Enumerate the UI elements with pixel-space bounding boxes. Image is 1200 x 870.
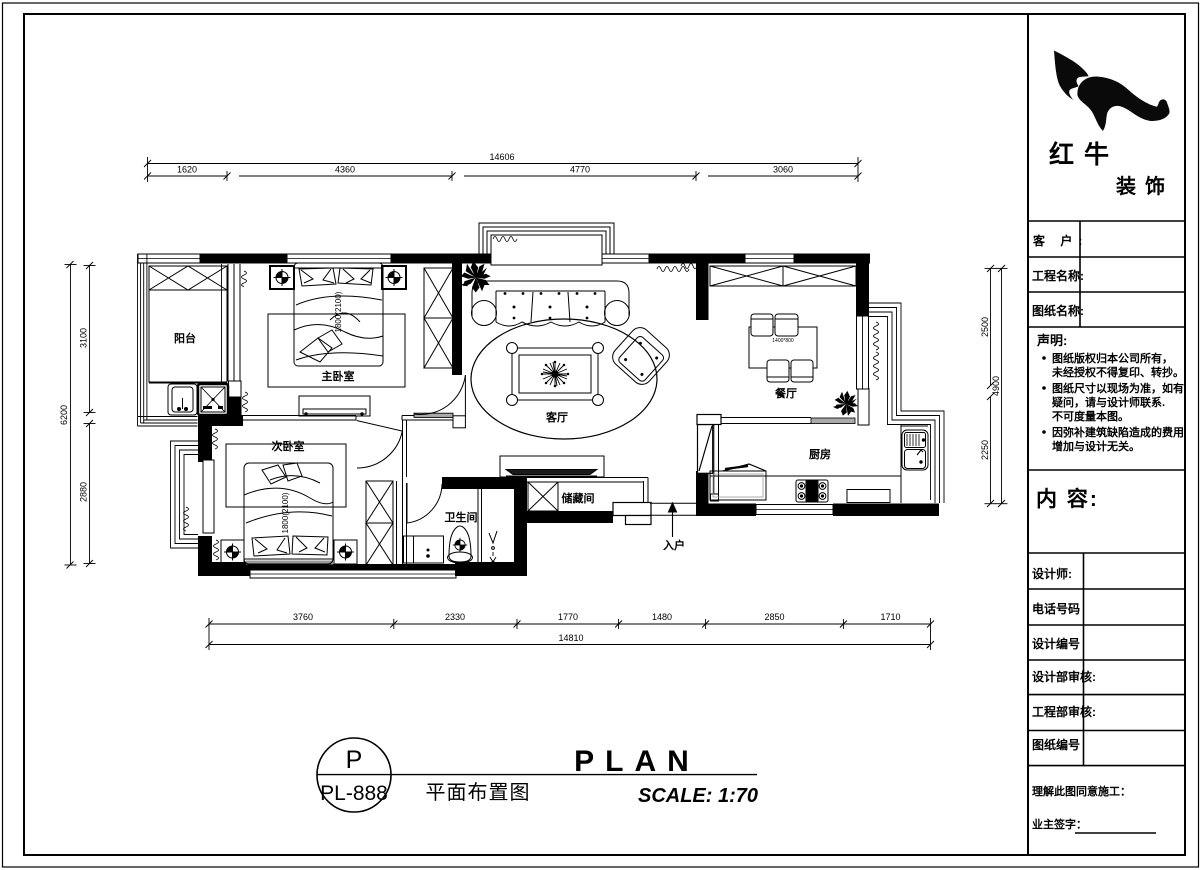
svg-text:红牛: 红牛 <box>1049 140 1119 169</box>
svg-text:装饰: 装饰 <box>1115 174 1174 198</box>
svg-text:餐厅: 餐厅 <box>774 386 797 400</box>
svg-text:主卧室: 主卧室 <box>322 369 355 383</box>
svg-text:内 容:: 内 容: <box>1036 487 1099 511</box>
svg-text:不可度量本图。: 不可度量本图。 <box>1052 409 1129 423</box>
svg-text:1800(2100): 1800(2100) <box>281 492 290 533</box>
svg-text:图纸编号: 图纸编号 <box>1032 737 1080 752</box>
svg-text:平面布置图: 平面布置图 <box>426 781 531 804</box>
svg-text:1770: 1770 <box>558 612 578 622</box>
svg-text:电话号码: 电话号码 <box>1032 601 1080 616</box>
svg-text:未经授权不得复印、转抄。: 未经授权不得复印、转抄。 <box>1051 365 1184 379</box>
svg-text:设计编号: 设计编号 <box>1032 636 1080 651</box>
svg-text:2500: 2500 <box>980 317 990 337</box>
svg-text:1480: 1480 <box>652 612 672 622</box>
svg-text:2850: 2850 <box>764 612 784 622</box>
svg-text:因弥补建筑缺陷造成的费用: 因弥补建筑缺陷造成的费用 <box>1052 425 1184 439</box>
svg-text:1710: 1710 <box>880 612 900 622</box>
svg-text:3100: 3100 <box>79 328 89 348</box>
svg-text:1800(2100): 1800(2100) <box>334 291 343 332</box>
svg-text:PL-888: PL-888 <box>320 782 388 805</box>
svg-text:4360: 4360 <box>335 165 355 175</box>
svg-text:工程部审核:: 工程部审核: <box>1032 704 1096 719</box>
svg-text:业主签字：: 业主签字： <box>1032 817 1087 831</box>
svg-text:储藏间: 储藏间 <box>562 491 595 505</box>
svg-text:6200: 6200 <box>59 405 69 425</box>
svg-text:2250: 2250 <box>980 440 990 460</box>
svg-text:14810: 14810 <box>558 633 583 643</box>
svg-text:4770: 4770 <box>570 165 590 175</box>
svg-text:次卧室: 次卧室 <box>272 439 305 453</box>
svg-text:理解此图同意施工：: 理解此图同意施工： <box>1032 784 1131 798</box>
svg-text:客 户:: 客 户: <box>1032 233 1088 248</box>
svg-text:3060: 3060 <box>773 165 793 175</box>
svg-text:图纸名称:: 图纸名称: <box>1032 303 1084 318</box>
svg-text:图纸版权归本公司所有，: 图纸版权归本公司所有， <box>1052 351 1173 365</box>
svg-text:入户: 入户 <box>663 538 685 552</box>
svg-text:设计师:: 设计师: <box>1032 566 1072 581</box>
svg-text:图纸尺寸以现场为准，如有: 图纸尺寸以现场为准，如有 <box>1052 381 1184 395</box>
svg-text:P: P <box>346 746 363 774</box>
svg-text:疑问，请与设计师联系.: 疑问，请与设计师联系. <box>1052 395 1165 409</box>
svg-text:增加与设计无关。: 增加与设计无关。 <box>1052 439 1140 453</box>
svg-text:声明:: 声明: <box>1036 333 1067 348</box>
svg-text:4900: 4900 <box>991 376 1001 396</box>
svg-text:阳台: 阳台 <box>174 331 196 345</box>
svg-text:14606: 14606 <box>489 152 514 162</box>
svg-text:卫生间: 卫生间 <box>445 510 478 524</box>
svg-text:SCALE: 1:70: SCALE: 1:70 <box>638 785 758 807</box>
svg-text:厨房: 厨房 <box>809 447 831 461</box>
svg-text:客厅: 客厅 <box>545 410 568 424</box>
svg-text:1400*800: 1400*800 <box>772 338 794 344</box>
svg-text:PLAN: PLAN <box>574 745 700 778</box>
svg-text:3760: 3760 <box>293 612 313 622</box>
svg-text:设计部审核:: 设计部审核: <box>1032 669 1096 684</box>
svg-text:1620: 1620 <box>177 165 197 175</box>
svg-text:2880: 2880 <box>79 482 89 502</box>
svg-text:2330: 2330 <box>445 612 465 622</box>
svg-text:工程名称:: 工程名称: <box>1032 268 1084 283</box>
